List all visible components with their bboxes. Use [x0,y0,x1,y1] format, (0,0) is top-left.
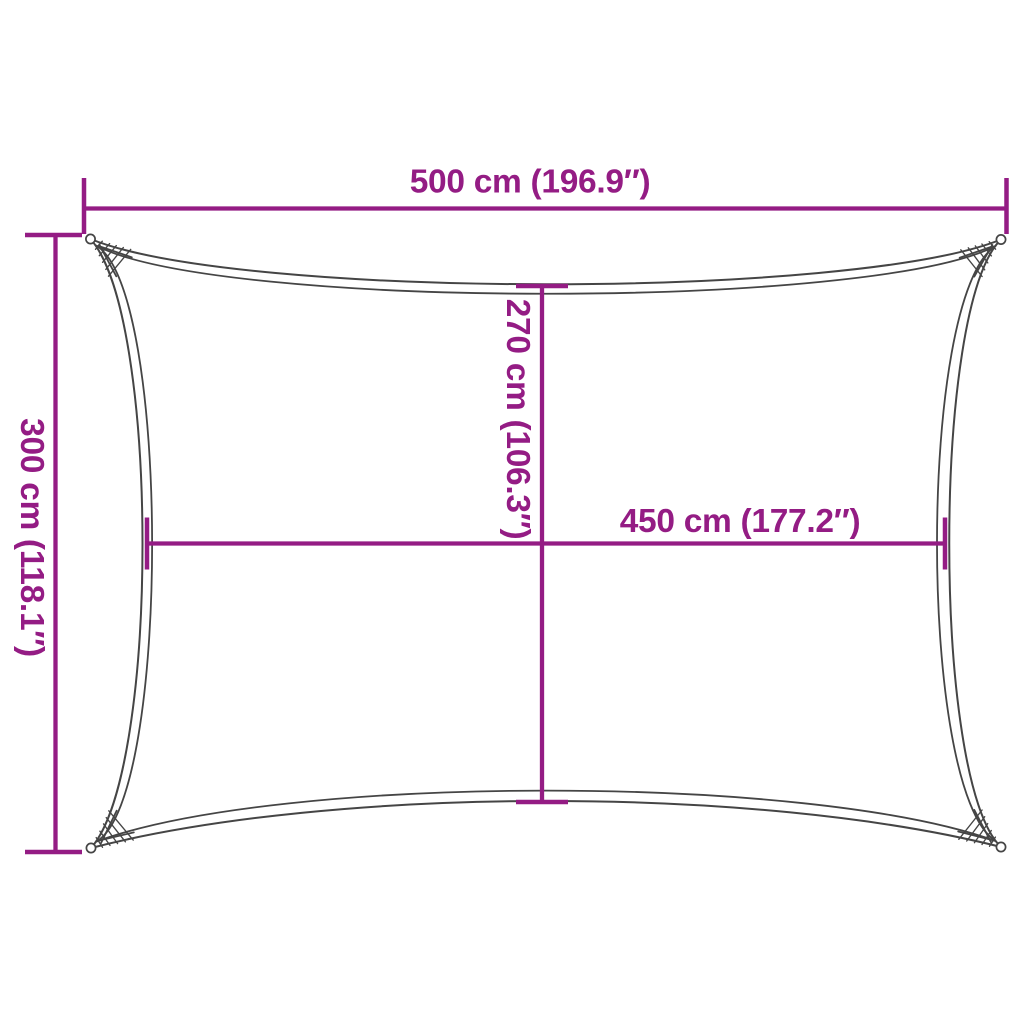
svg-text:500 cm (196.9″): 500 cm (196.9″) [410,164,651,201]
svg-text:270 cm (106.3″): 270 cm (106.3″) [499,299,536,540]
svg-text:450 cm (177.2″): 450 cm (177.2″) [620,503,861,540]
svg-text:300 cm (118.1″): 300 cm (118.1″) [13,418,50,657]
